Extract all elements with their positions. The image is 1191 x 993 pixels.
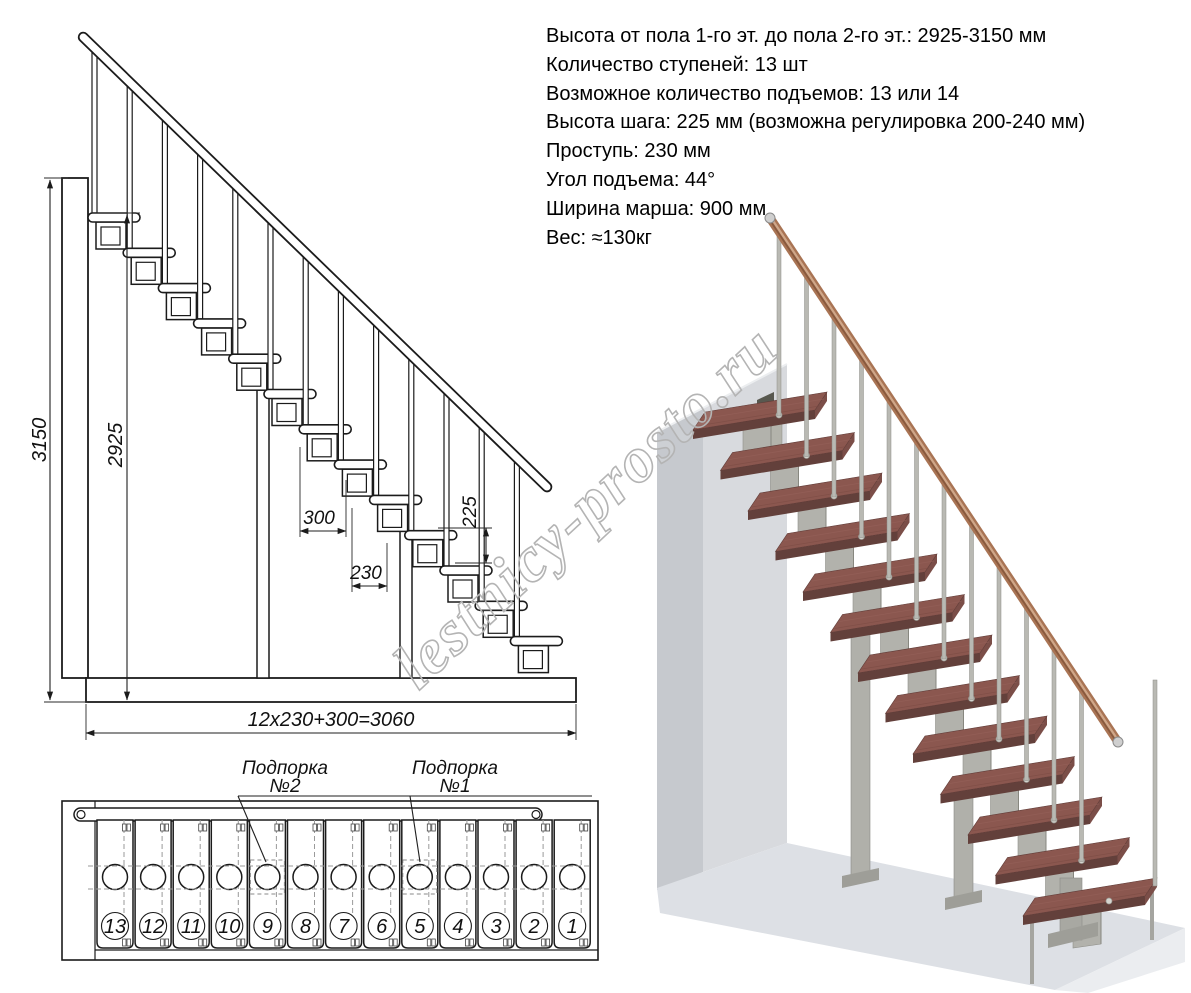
base-plate: [86, 678, 576, 702]
spec-text-block: Высота от пола 1-го эт. до пола 2-го эт.…: [546, 22, 1126, 252]
dim-label-total-run: 12x230+300=3060: [248, 709, 415, 731]
stringer-joint-circle: [255, 865, 280, 890]
step-number-label: 1: [567, 916, 578, 938]
stringer-joint-circle: [369, 865, 394, 890]
spec-line-6: Угол подъема: 44°: [546, 166, 1126, 195]
stringer-joint-circle: [407, 865, 432, 890]
step-number-label: 4: [452, 916, 463, 938]
step-number-label: 3: [490, 916, 501, 938]
stringer-joint-circle: [141, 865, 166, 890]
stringer-joint-circle: [331, 865, 356, 890]
support-2-number: №2: [269, 776, 301, 797]
rod-3d: [997, 560, 1001, 740]
plan-step-cell-10: 10: [211, 820, 247, 948]
plan-step-cell-2: 2: [516, 820, 552, 948]
dimension-floor-height: 2925: [92, 213, 140, 700]
end-baluster-rod: [1153, 680, 1157, 886]
stringer-joint-circle: [484, 865, 509, 890]
step-number-label: 9: [262, 916, 273, 938]
stringer-joint-circle: [293, 865, 318, 890]
step-number-label: 2: [528, 916, 540, 938]
handrail-cap-right: [532, 811, 540, 819]
plan-step-cell-5: 5: [402, 820, 438, 948]
dim-label-230: 230: [349, 563, 382, 584]
stringer-joint-circle: [522, 865, 547, 890]
support-column-2: [257, 390, 269, 678]
step-number-label: 13: [104, 916, 126, 938]
support-1-number: №1: [439, 776, 470, 797]
rod-3d: [887, 394, 891, 578]
step-number-label: 6: [376, 916, 388, 938]
handrail-cap-left: [77, 811, 85, 819]
rod-3d: [1080, 684, 1084, 861]
plan-step-cells: 13121110987654321: [97, 820, 590, 948]
dimension-total-run: 12x230+300=3060: [86, 704, 576, 740]
step-number-label: 11: [181, 916, 202, 938]
stringer-joint-circle: [560, 865, 585, 890]
step-number-label: 12: [142, 916, 164, 938]
spec-line-2: Количество ступеней: 13 шт: [546, 51, 1126, 80]
rod-3d: [805, 270, 809, 457]
dim-label-3150: 3150: [29, 418, 51, 463]
handrail-plan: [74, 808, 542, 821]
step-number-label: 8: [300, 916, 311, 938]
plan-step-cell-3: 3: [478, 820, 514, 948]
spec-line-8: Вес: ≈130кг: [546, 224, 1126, 253]
plan-step-cell-13: 13: [97, 820, 133, 948]
plan-step-cell-4: 4: [440, 820, 476, 948]
spec-line-4: Высота шага: 225 мм (возможна регулировк…: [546, 108, 1126, 137]
step-number-label: 5: [414, 916, 426, 938]
plan-step-cell-12: 12: [135, 820, 171, 948]
dim-label-300: 300: [303, 508, 335, 529]
rod-3d: [1025, 601, 1029, 780]
plan-step-cell-11: 11: [173, 820, 209, 948]
rod-3d: [942, 477, 946, 659]
rod-3d: [777, 229, 781, 416]
upper-floor-wall: [62, 178, 88, 678]
rod-3d: [970, 518, 974, 699]
rod-3d: [860, 353, 864, 538]
staircase-spec-sheet: { "specs": { "lines": [ "Высота от пола …: [0, 0, 1191, 993]
plan-step-cell-6: 6: [364, 820, 400, 948]
rod-3d: [832, 311, 836, 497]
stringer-joint-circle: [103, 865, 128, 890]
dim-label-2925: 2925: [105, 422, 127, 468]
plan-step-cell-9: 9: [249, 820, 285, 948]
rod-3d: [1052, 643, 1056, 821]
plan-step-cell-7: 7: [326, 820, 362, 948]
stringer-joint-circle: [217, 865, 242, 890]
spec-line-7: Ширина марша: 900 мм: [546, 195, 1126, 224]
plan-step-cell-1: 1: [554, 820, 590, 948]
step-number-label: 10: [218, 916, 240, 938]
handrail-bottom-cap: [1113, 737, 1123, 747]
spec-line-5: Проступь: 230 мм: [546, 137, 1126, 166]
plan-step-cell-8: 8: [288, 820, 324, 948]
step1-front-leg: [1030, 920, 1034, 984]
spec-line-1: Высота от пола 1-го эт. до пола 2-го эт.…: [546, 22, 1126, 51]
step-number-label: 7: [338, 916, 350, 938]
rod-3d: [915, 436, 919, 619]
stringer-joint-circle: [445, 865, 470, 890]
stringer-joint-circle: [179, 865, 204, 890]
plan-view-drawing: 13121110987654321 Подпорка №2 Подпорка №…: [62, 758, 598, 960]
dim-label-225: 225: [460, 496, 481, 529]
spec-line-3: Возможное количество подъемов: 13 или 14: [546, 80, 1126, 109]
